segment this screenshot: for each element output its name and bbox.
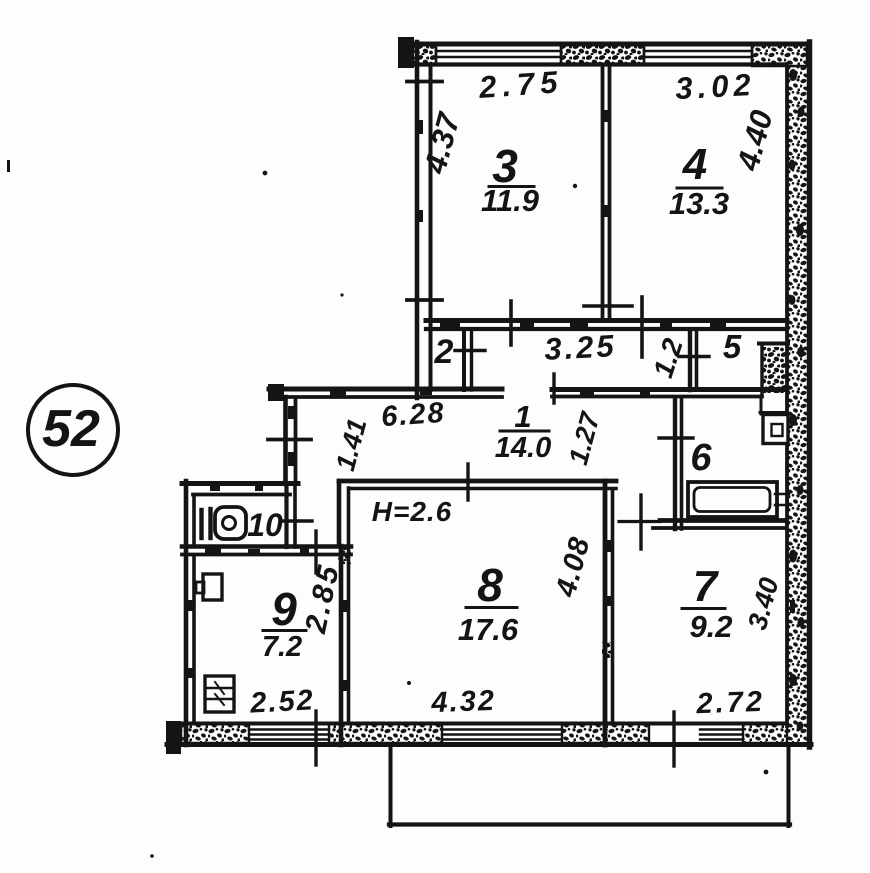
- svg-text:4: 4: [682, 140, 707, 189]
- svg-text:3.40: 3.40: [742, 574, 785, 633]
- svg-text:3.25: 3.25: [543, 328, 617, 367]
- svg-text:2.72: 2.72: [695, 686, 766, 720]
- svg-text:9: 9: [271, 583, 297, 635]
- svg-text:13.3: 13.3: [669, 186, 729, 221]
- svg-text:4.08: 4.08: [550, 533, 597, 601]
- svg-text:10: 10: [247, 507, 283, 543]
- svg-text:4.32: 4.32: [430, 685, 497, 719]
- svg-text:1: 1: [514, 399, 531, 434]
- svg-text:8: 8: [477, 559, 503, 611]
- svg-text:3.02: 3.02: [674, 67, 756, 106]
- svg-text:6.28: 6.28: [380, 397, 447, 433]
- svg-text:17.6: 17.6: [458, 612, 519, 647]
- svg-text:52: 52: [42, 400, 100, 458]
- svg-text:11.9: 11.9: [481, 183, 540, 218]
- svg-text:7: 7: [693, 562, 720, 611]
- svg-text:2.52: 2.52: [249, 684, 316, 719]
- svg-text:4.37: 4.37: [417, 108, 467, 178]
- svg-text:H=2.6: H=2.6: [372, 496, 453, 527]
- svg-text:7.2: 7.2: [262, 631, 302, 663]
- svg-text:4.40: 4.40: [730, 107, 780, 175]
- svg-text:1.41: 1.41: [330, 415, 373, 474]
- svg-text:1.27: 1.27: [563, 407, 606, 467]
- svg-text:9.2: 9.2: [689, 609, 732, 644]
- svg-text:14.0: 14.0: [495, 432, 551, 464]
- svg-text:6: 6: [690, 437, 712, 479]
- svg-text:1.2: 1.2: [647, 334, 689, 381]
- svg-text:2: 2: [434, 333, 454, 371]
- svg-text:5: 5: [723, 328, 742, 365]
- svg-text:2.75: 2.75: [477, 64, 565, 105]
